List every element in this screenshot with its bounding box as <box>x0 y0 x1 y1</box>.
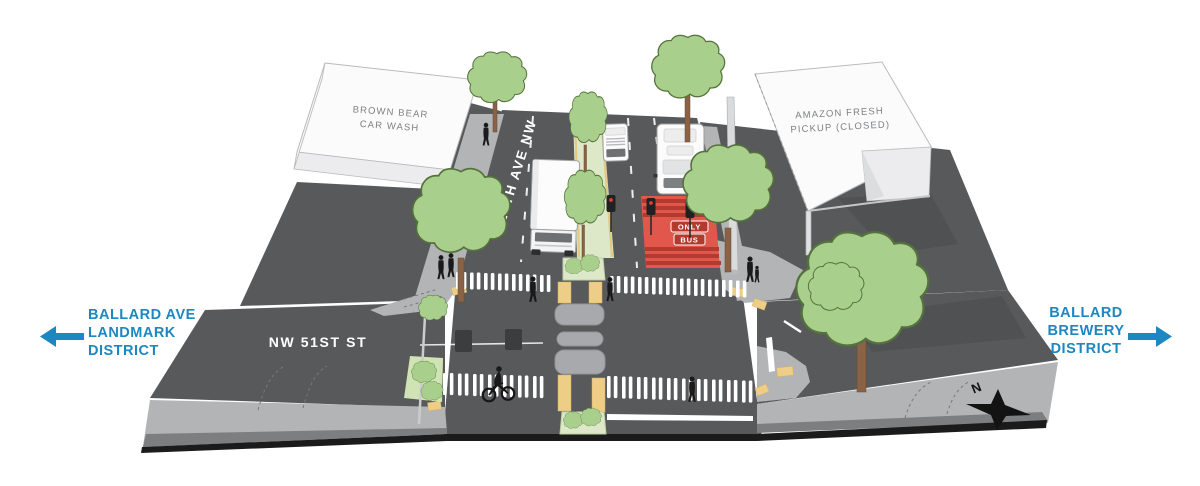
refuge-islands <box>555 304 605 374</box>
van-windshield <box>606 149 625 158</box>
bus-lane-stripe <box>645 254 719 258</box>
detector-loop <box>505 329 522 350</box>
signal-red-light <box>609 198 613 202</box>
detector-loop <box>455 330 472 352</box>
truck-wheel <box>531 249 540 255</box>
district-left-line1: BALLARD AVE <box>88 307 196 323</box>
bus-mirror <box>654 174 658 177</box>
tactile-pad <box>558 375 571 411</box>
signal-red-light <box>649 201 653 205</box>
district-left-line2: LANDMARK <box>88 325 176 341</box>
tree-trunk <box>458 258 464 302</box>
street-label-51st: NW 51ST ST <box>269 334 367 350</box>
right-arrow-icon <box>1128 326 1172 347</box>
van <box>602 124 628 162</box>
district-right-line2: BREWERY <box>1047 323 1124 339</box>
amazon-support-pole <box>806 211 811 255</box>
district-label-right: BALLARD BREWERY DISTRICT <box>1047 305 1172 357</box>
district-label-left: BALLARD AVE LANDMARK DISTRICT <box>40 307 196 359</box>
tactile-pad <box>558 282 571 303</box>
tree <box>652 35 725 98</box>
tactile-pad <box>592 378 605 412</box>
tree-trunk <box>857 340 866 392</box>
refuge-island <box>555 350 605 374</box>
tree-trunk <box>582 225 585 260</box>
refuge-island <box>555 304 604 325</box>
tree-trunk <box>493 98 497 132</box>
tactile-pad <box>589 282 602 303</box>
bus-lane-stripe <box>645 247 719 251</box>
tactile-pad <box>428 401 442 411</box>
tree-trunk <box>725 228 731 272</box>
refuge-island <box>557 332 603 346</box>
truck-wheel <box>564 250 573 256</box>
street-design-rendering: ONLY BUS BROWN BEAR CAR WASH AMAZON FRES… <box>0 0 1200 486</box>
bus-lane-stripe <box>646 261 721 265</box>
truck-windshield <box>535 232 572 242</box>
district-left-line3: DISTRICT <box>88 343 159 359</box>
district-right-line3: DISTRICT <box>1051 341 1122 357</box>
tactile-pad <box>777 366 794 377</box>
tree <box>468 52 527 103</box>
tree-trunk <box>685 92 690 142</box>
district-right-line1: BALLARD <box>1049 305 1123 321</box>
left-arrow-icon <box>40 326 84 347</box>
rendering-canvas: ONLY BUS BROWN BEAR CAR WASH AMAZON FRES… <box>0 0 1200 486</box>
